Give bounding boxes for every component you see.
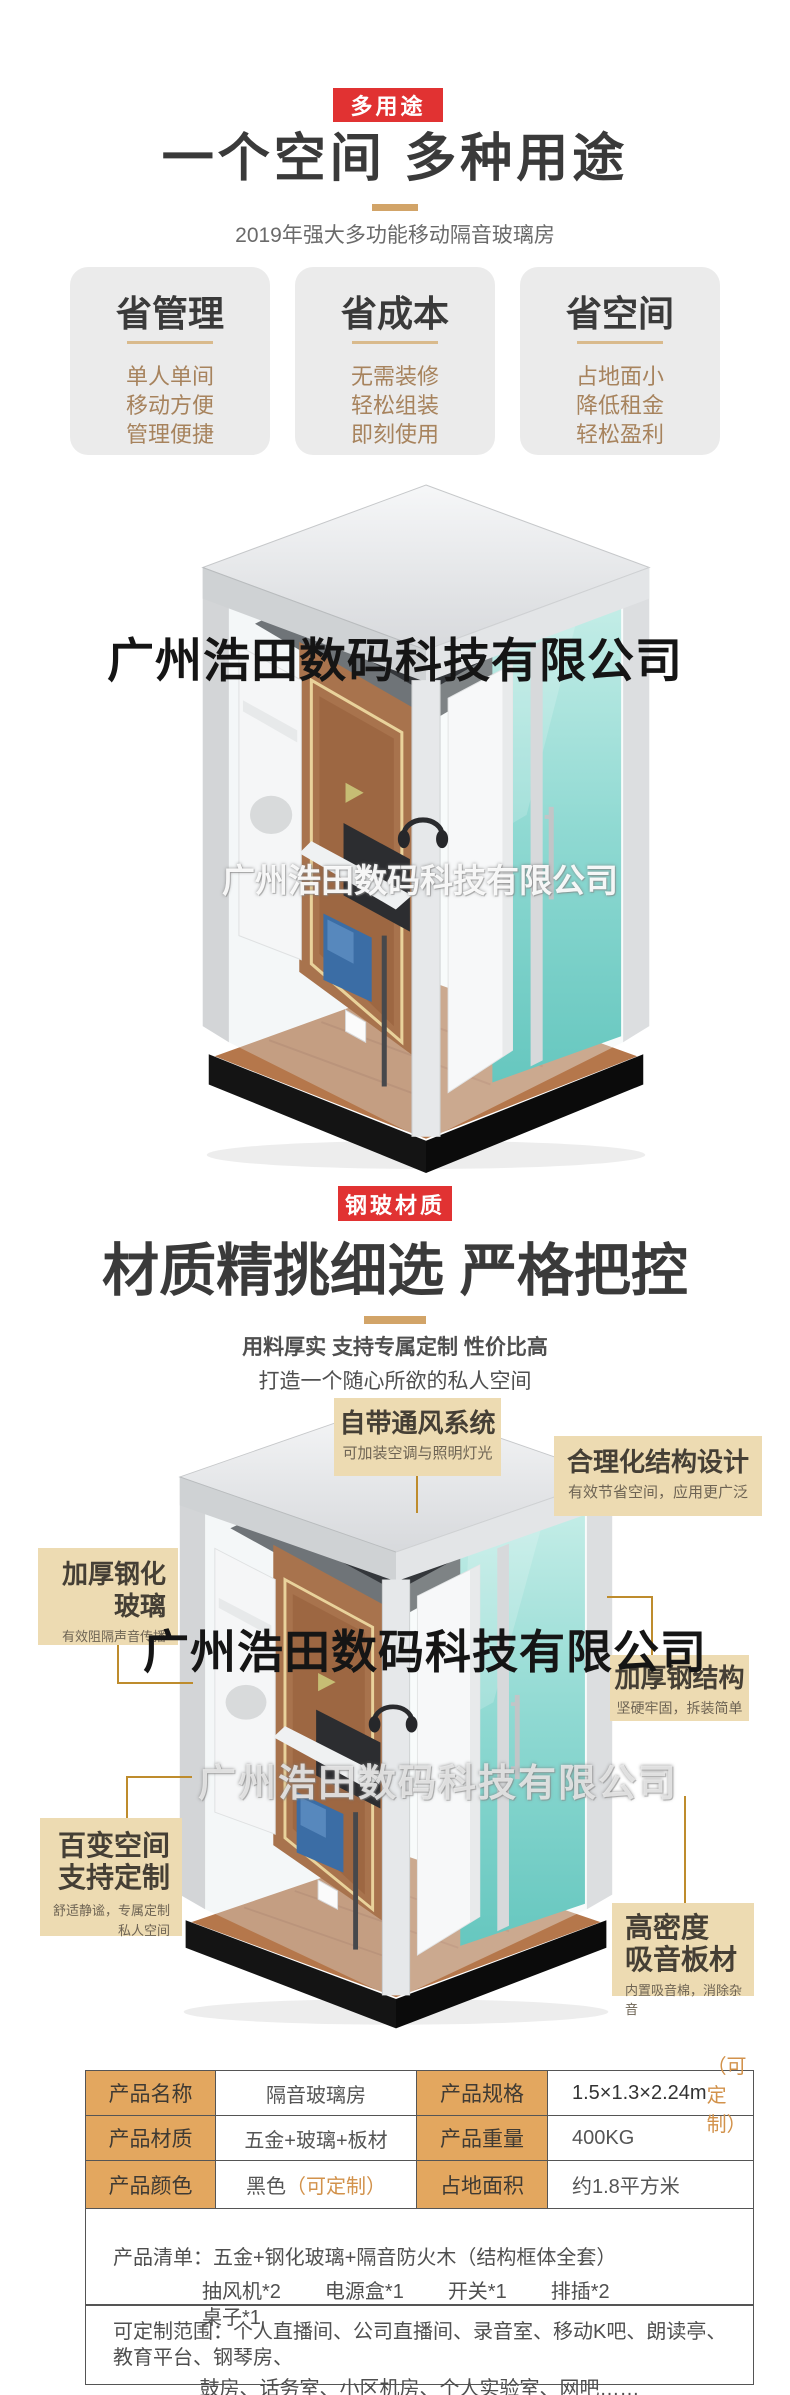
card-underline — [127, 341, 213, 344]
callout-desc: 有效节省空间，应用更广泛 — [554, 1483, 762, 1502]
card-item: 单人单间 — [70, 362, 270, 391]
watermark-company-light-1: 广州浩田数码科技有限公司 — [222, 854, 618, 902]
watermark-company-light-2: 广州浩田数码科技有限公司 — [198, 1752, 678, 1807]
spec-row-customizable: 可定制范围：个人直播间、公司直播间、录音室、移动K吧、朗读亭、教育平台、钢琴房、… — [86, 2305, 753, 2384]
title-underline — [372, 204, 418, 211]
watermark-company-dark-1: 广州浩田数码科技有限公司 — [0, 622, 790, 691]
callout-title: 合理化结构设计 — [554, 1446, 762, 1478]
material-subtitle-1: 用料厚实 支持专属定制 性价比高 — [0, 1331, 790, 1361]
feature-card-cost: 省成本 无需装修 轻松组装 即刻使用 — [295, 267, 495, 455]
product-detail-page: 多用途 一个空间 多种用途 2019年强大多功能移动隔音玻璃房 省管理 单人单间… — [0, 0, 790, 2395]
card-underline — [352, 341, 438, 344]
material-title-underline — [364, 1316, 426, 1324]
main-title: 一个空间 多种用途 — [0, 128, 790, 190]
callout-custom-space: 百变空间 支持定制 舒适静谧，专属定制 私人空间 — [40, 1818, 182, 1936]
card-item: 占地面小 — [520, 362, 720, 391]
spec-label: 产品材质 — [86, 2116, 216, 2160]
spec-value-text: 1.5×1.3×2.24m — [572, 2082, 707, 2105]
material-subtitle-2: 打造一个随心所欲的私人空间 — [0, 1365, 790, 1395]
callout-title: 支持定制 — [40, 1862, 170, 1894]
spec-label: 产品重量 — [417, 2116, 548, 2160]
customizable-line1: 可定制范围：个人直播间、公司直播间、录音室、移动K吧、朗读亭、教育平台、钢琴房、 — [86, 2306, 753, 2371]
customizable-label: 可定制范围： — [113, 2321, 233, 2343]
callout-desc: 坚硬牢固，拆装简单 — [610, 1699, 749, 1718]
booth-product-image-1 — [190, 483, 662, 1177]
pointer-line-soundboard — [684, 1796, 686, 1903]
card-underline — [577, 341, 663, 344]
card-item: 轻松组装 — [295, 391, 495, 420]
pointer-line-ventilation — [416, 1476, 418, 1513]
package-list-label: 产品清单： — [113, 2247, 213, 2269]
spec-label: 占地面积 — [417, 2161, 548, 2208]
badge-multiuse: 多用途 — [333, 88, 443, 122]
badge-material: 钢玻材质 — [338, 1186, 452, 1221]
spec-row-name: 产品名称 隔音玻璃房 产品规格 1.5×1.3×2.24m （可定制） — [86, 2071, 753, 2116]
spec-row-color: 产品颜色 黑色 （可定制） 占地面积 约1.8平方米 — [86, 2161, 753, 2209]
callout-structure: 合理化结构设计 有效节省空间，应用更广泛 — [554, 1436, 762, 1516]
customizable-line2: 鼓房、话务室、小区机房、个人实验室、网吧…… — [86, 2371, 753, 2395]
package-item: 电源盒*1 — [325, 2279, 404, 2305]
material-title: 材质精挑细选 严格把控 — [0, 1238, 790, 1304]
feature-cards: 省管理 单人单间 移动方便 管理便捷 省成本 无需装修 轻松组装 即刻使用 省空… — [70, 267, 720, 455]
pointer-line-space-h — [126, 1776, 192, 1778]
spec-value: 隔音玻璃房 — [216, 2071, 417, 2115]
card-item: 即刻使用 — [295, 420, 495, 449]
spec-value: 1.5×1.3×2.24m （可定制） — [548, 2071, 753, 2115]
feature-card-space: 省空间 占地面小 降低租金 轻松盈利 — [520, 267, 720, 455]
callout-title: 高密度 — [625, 1912, 754, 1944]
callout-desc: 内置吸音棉，消除杂音 — [625, 1981, 754, 2019]
pointer-line-space-v — [126, 1776, 128, 1820]
callout-title: 加厚钢化 — [38, 1558, 166, 1590]
spec-value-note: （可定制） — [286, 2170, 386, 2199]
spec-value: 约1.8平方米 — [548, 2161, 753, 2208]
watermark-company-dark-2: 广州浩田数码科技有限公司 — [60, 1616, 790, 1682]
callout-ventilation: 自带通风系统 可加装空调与照明灯光 — [334, 1398, 501, 1476]
card-title: 省管理 — [70, 293, 270, 335]
spec-label: 产品规格 — [417, 2071, 548, 2115]
card-title: 省空间 — [520, 293, 720, 335]
spec-value: 黑色 （可定制） — [216, 2161, 417, 2208]
callout-desc: 舒适静谧，专属定制 — [40, 1901, 170, 1920]
spec-row-material: 产品材质 五金+玻璃+板材 产品重量 400KG — [86, 2116, 753, 2161]
package-item: 抽风机*2 — [202, 2279, 281, 2305]
spec-table: 产品名称 隔音玻璃房 产品规格 1.5×1.3×2.24m （可定制） 产品材质… — [85, 2070, 754, 2385]
callout-desc: 私人空间 — [40, 1921, 170, 1940]
spec-label: 产品名称 — [86, 2071, 216, 2115]
package-list-line1: 产品清单：五金+钢化玻璃+隔音防火木（结构框体全套） — [86, 2209, 753, 2271]
card-item: 无需装修 — [295, 362, 495, 391]
callout-soundboard: 高密度 吸音板材 内置吸音棉，消除杂音 — [612, 1903, 754, 1996]
pointer-line-glass-h — [117, 1682, 193, 1684]
card-title: 省成本 — [295, 293, 495, 335]
spec-row-package-list: 产品清单：五金+钢化玻璃+隔音防火木（结构框体全套） 抽风机*2电源盒*1开关*… — [86, 2209, 753, 2305]
callout-title: 自带通风系统 — [334, 1407, 501, 1439]
package-item: 排插*2 — [551, 2279, 610, 2305]
callout-title: 百变空间 — [40, 1830, 170, 1862]
pointer-line-steel-h — [607, 1596, 653, 1598]
card-item: 移动方便 — [70, 391, 270, 420]
card-item: 管理便捷 — [70, 420, 270, 449]
booth-product-image-2 — [172, 1400, 620, 2032]
spec-value: 400KG — [548, 2116, 753, 2160]
spec-label: 产品颜色 — [86, 2161, 216, 2208]
main-subtitle: 2019年强大多功能移动隔音玻璃房 — [0, 219, 790, 249]
card-item: 降低租金 — [520, 391, 720, 420]
callout-desc: 可加装空调与照明灯光 — [334, 1444, 501, 1463]
spec-value: 五金+玻璃+板材 — [216, 2116, 417, 2160]
card-item: 轻松盈利 — [520, 420, 720, 449]
callout-title: 吸音板材 — [625, 1944, 754, 1976]
spec-value-text: 黑色 — [246, 2170, 286, 2199]
feature-card-manage: 省管理 单人单间 移动方便 管理便捷 — [70, 267, 270, 455]
package-list-main: 五金+钢化玻璃+隔音防火木（结构框体全套） — [213, 2247, 616, 2269]
package-item: 开关*1 — [448, 2279, 507, 2305]
